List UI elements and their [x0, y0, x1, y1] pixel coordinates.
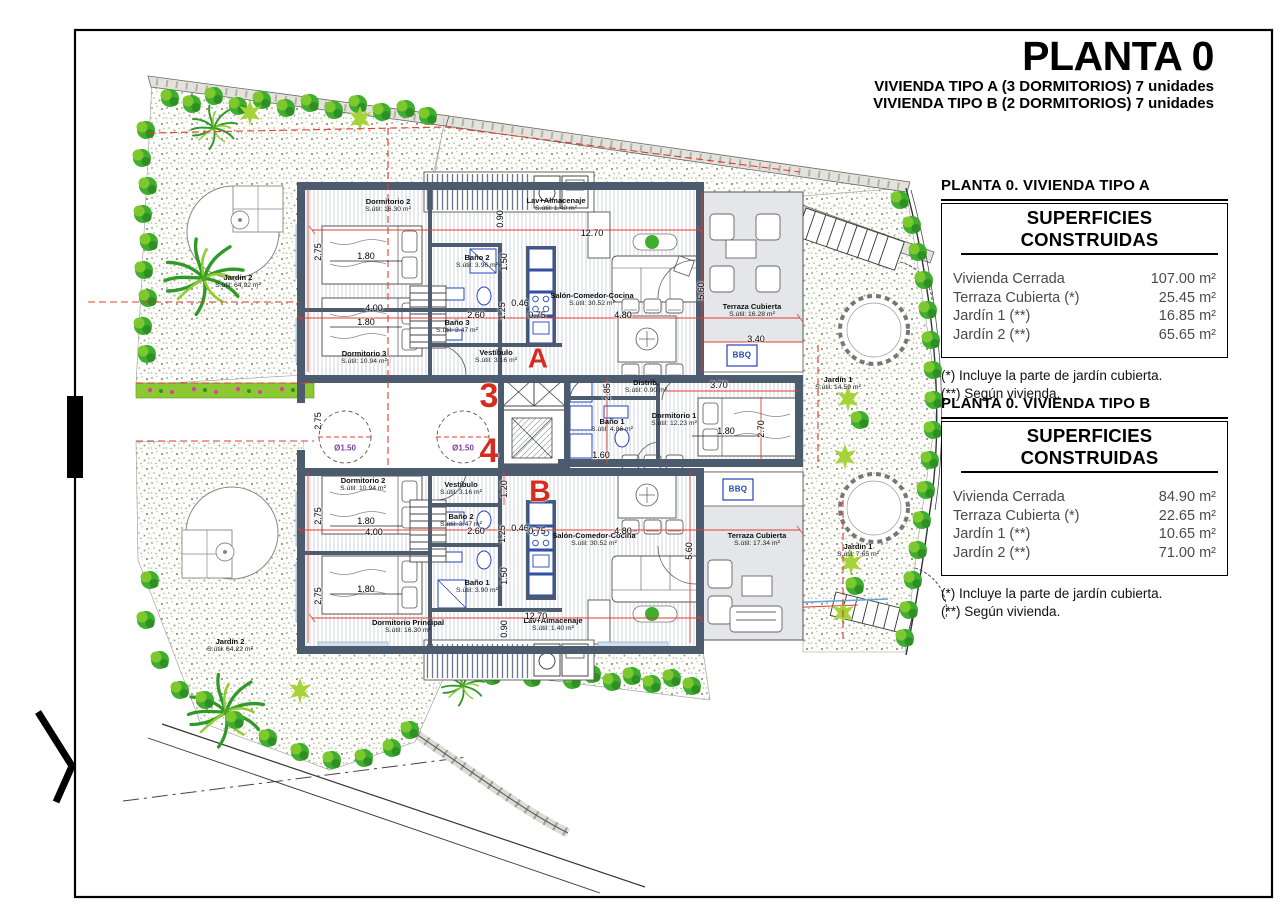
surface-row: Vivienda Cerrada84.90 m² — [953, 488, 1216, 507]
table-box: SUPERFICIES CONSTRUIDAS Vivienda Cerrada… — [941, 421, 1228, 576]
surface-row: Terraza Cubierta (*)25.45 m² — [953, 289, 1216, 308]
table-note: (**) Según vivienda. — [941, 603, 1228, 621]
surface-row: Jardín 2 (**)65.65 m² — [953, 326, 1216, 345]
drawing-sheet: Dormitorio 2S.útil: 16.30 m²Lav+Almacena… — [0, 0, 1280, 905]
surface-row-label: Vivienda Cerrada — [953, 270, 1065, 289]
table-notes: (*) Incluye la parte de jardín cubierta.… — [941, 585, 1228, 621]
surface-row-value: 22.65 m² — [1159, 507, 1216, 526]
table-note: (*) Incluye la parte de jardín cubierta. — [941, 367, 1228, 385]
surface-row-value: 10.65 m² — [1159, 525, 1216, 544]
surface-row-value: 65.65 m² — [1159, 326, 1216, 345]
table-note: (*) Incluye la parte de jardín cubierta. — [941, 585, 1228, 603]
surface-row-label: Vivienda Cerrada — [953, 488, 1065, 507]
subtitle-tipo-b: VIVIENDA TIPO B (2 DORMITORIOS) 7 unidad… — [873, 95, 1214, 112]
surface-row-value: 71.00 m² — [1159, 544, 1216, 563]
surface-row-label: Terraza Cubierta (*) — [953, 507, 1080, 526]
table-heading: PLANTA 0. VIVIENDA TIPO A — [941, 177, 1228, 201]
surface-row-label: Jardín 2 (**) — [953, 544, 1030, 563]
table-box-title: SUPERFICIES CONSTRUIDAS — [961, 422, 1218, 473]
surface-row-value: 25.45 m² — [1159, 289, 1216, 308]
surface-row-label: Jardín 1 (**) — [953, 307, 1030, 326]
surface-row-label: Jardín 1 (**) — [953, 525, 1030, 544]
surface-table-tipo-b: PLANTA 0. VIVIENDA TIPO B SUPERFICIES CO… — [941, 395, 1228, 621]
page-title: PLANTA 0 — [873, 36, 1214, 78]
surface-row: Jardín 1 (**)16.85 m² — [953, 307, 1216, 326]
title-block: PLANTA 0 VIVIENDA TIPO A (3 DORMITORIOS)… — [873, 36, 1214, 112]
surface-table-tipo-a: PLANTA 0. VIVIENDA TIPO A SUPERFICIES CO… — [941, 177, 1228, 403]
surface-row: Jardín 2 (**)71.00 m² — [953, 544, 1216, 563]
surface-row-value: 84.90 m² — [1159, 488, 1216, 507]
table-box: SUPERFICIES CONSTRUIDAS Vivienda Cerrada… — [941, 203, 1228, 358]
table-rows: Vivienda Cerrada84.90 m²Terraza Cubierta… — [953, 488, 1216, 562]
surface-row: Jardín 1 (**)10.65 m² — [953, 525, 1216, 544]
surface-row: Vivienda Cerrada107.00 m² — [953, 270, 1216, 289]
surface-row: Terraza Cubierta (*)22.65 m² — [953, 507, 1216, 526]
surface-row-label: Jardín 2 (**) — [953, 326, 1030, 345]
table-box-title: SUPERFICIES CONSTRUIDAS — [961, 204, 1218, 255]
surface-row-value: 16.85 m² — [1159, 307, 1216, 326]
surface-row-label: Terraza Cubierta (*) — [953, 289, 1080, 308]
table-heading: PLANTA 0. VIVIENDA TIPO B — [941, 395, 1228, 419]
surface-row-value: 107.00 m² — [1151, 270, 1216, 289]
table-rows: Vivienda Cerrada107.00 m²Terraza Cubiert… — [953, 270, 1216, 344]
subtitle-tipo-a: VIVIENDA TIPO A (3 DORMITORIOS) 7 unidad… — [873, 78, 1214, 95]
